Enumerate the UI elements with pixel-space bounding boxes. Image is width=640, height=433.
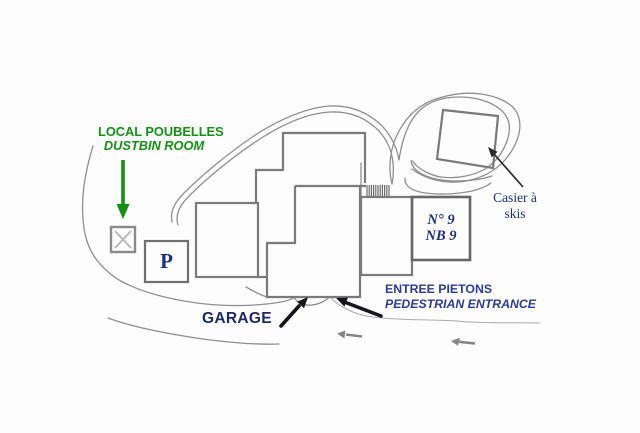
main-building-upper-outline xyxy=(256,133,365,204)
main-building-lower-outline xyxy=(267,186,360,297)
stairs-hatch xyxy=(367,185,389,196)
right-building-outline xyxy=(361,197,412,275)
garage-label: GARAGE xyxy=(202,310,272,328)
ski-locker-outline xyxy=(437,110,498,168)
ski-locker-label-line1: Casier à xyxy=(478,190,552,206)
site-plan-map: LOCAL POUBELLES DUSTBIN ROOM P N° 9 NB 9… xyxy=(0,0,640,433)
traffic-arrow-icon xyxy=(451,338,475,346)
residence-number-en: NB 9 xyxy=(425,228,456,245)
pedestrian-entrance-label: ENTREE PIETONS PEDESTRIAN ENTRANCE xyxy=(385,282,536,311)
ski-locker-label-line2: skis xyxy=(478,206,552,222)
left-building-outline xyxy=(196,203,258,277)
pedestrian-entrance-label-fr: ENTREE PIETONS xyxy=(385,282,536,297)
driveway-arc xyxy=(246,287,267,297)
ski-locker-label: Casier à skis xyxy=(478,190,552,221)
residence-number-label: N° 9 NB 9 xyxy=(412,199,470,257)
dustbin-room-label-fr: LOCAL POUBELLES xyxy=(98,125,210,139)
dustbin-room-label: LOCAL POUBELLES DUSTBIN ROOM xyxy=(98,125,210,152)
ski-loop-outer xyxy=(390,93,520,184)
parking-label: P xyxy=(145,241,188,282)
residence-number-fr: N° 9 xyxy=(427,212,454,229)
pedestrian-entrance-label-en: PEDESTRIAN ENTRANCE xyxy=(385,297,536,312)
green-down-arrow-icon xyxy=(117,160,130,219)
traffic-arrow-icon xyxy=(337,331,362,339)
dustbin-room-label-en: DUSTBIN ROOM xyxy=(98,139,210,153)
dustbin-x-mark-icon xyxy=(115,231,131,248)
